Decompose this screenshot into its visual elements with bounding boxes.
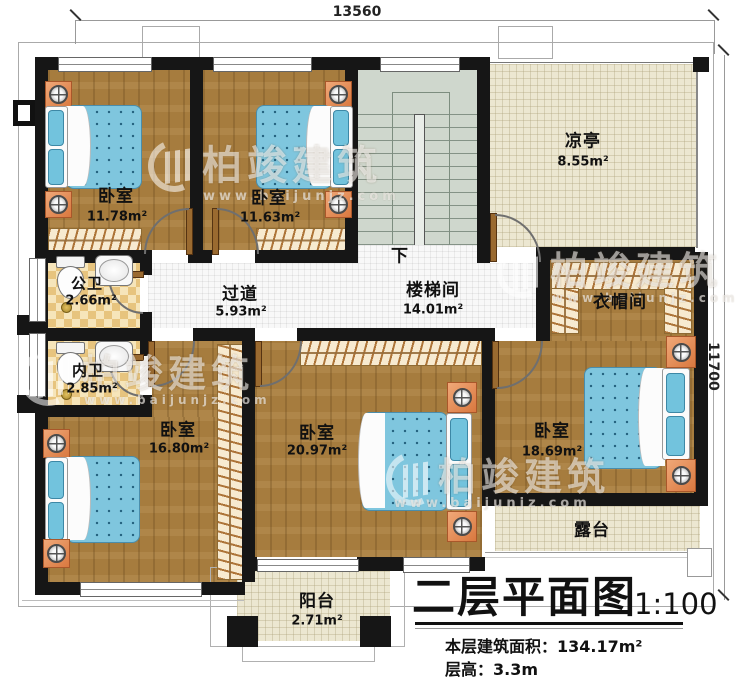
extension-box-right	[498, 26, 553, 59]
nightstand	[45, 81, 72, 108]
lamp-icon	[453, 517, 472, 536]
bed-sheet	[638, 368, 665, 466]
extension-box-left	[142, 26, 200, 59]
nightstand	[45, 191, 72, 218]
label-bedroom2: 卧室	[251, 191, 287, 208]
label-bedroom5-area: 18.69m²	[522, 446, 582, 459]
window-bedroom4	[403, 557, 470, 573]
pavilion-corner-pillar	[693, 57, 709, 72]
nightstand	[447, 382, 477, 413]
watermark-brand: 柏竣建筑	[438, 458, 610, 496]
bed-sheet	[358, 413, 385, 508]
label-hallway: 过道	[222, 287, 258, 304]
floor-area-label: 本层建筑面积：	[445, 637, 557, 656]
label-stairs-down: 下	[391, 249, 409, 266]
terrace-rail-2	[485, 557, 711, 558]
title-underline	[415, 622, 683, 625]
label-bedroom3: 卧室	[160, 423, 196, 440]
watermark-logo-icon	[20, 350, 76, 406]
watermark-brand: 柏竣建筑	[550, 252, 722, 290]
pillow	[48, 149, 64, 185]
dim-line-top	[75, 20, 715, 21]
nightstand	[43, 539, 70, 568]
lamp-icon	[49, 195, 68, 214]
stair-divider	[414, 114, 425, 250]
floor-area-row: 本层建筑面积：134.17m²	[445, 639, 642, 655]
closet-bedroom4	[300, 340, 482, 366]
nightstand	[325, 81, 352, 108]
floor-area-value: 134.17m²	[557, 637, 642, 656]
nightstand	[666, 459, 696, 492]
bed-headboard	[662, 368, 690, 460]
wall	[477, 57, 490, 263]
bed-sheet	[64, 457, 91, 540]
dim-line-right	[724, 55, 725, 600]
label-terrace: 露台	[574, 523, 610, 540]
floor-height-label: 层高：	[445, 660, 493, 679]
watermark-brand: 柏竣建筑	[202, 146, 382, 186]
balcony-sliding-door	[257, 559, 359, 572]
watermark-logo-icon	[497, 248, 547, 298]
window-bedroom1	[58, 57, 152, 72]
pillow	[48, 110, 64, 146]
label-bedroom4-area: 20.97m²	[287, 445, 347, 458]
nightstand	[447, 511, 477, 542]
window-bedroom3	[80, 582, 202, 597]
flue-box	[13, 100, 35, 126]
label-private-bath: 内卫	[72, 364, 104, 379]
pillow	[48, 461, 64, 499]
pavilion-rail-right	[696, 62, 698, 248]
wall	[35, 328, 148, 341]
balcony-pillar-right	[360, 616, 391, 647]
lamp-icon	[672, 466, 691, 485]
label-bedroom5: 卧室	[534, 424, 570, 441]
plan-scale: 1:100	[634, 590, 718, 619]
nightstand	[43, 429, 70, 458]
label-bedroom4: 卧室	[299, 426, 335, 443]
label-bedroom1-area: 11.78m²	[87, 211, 147, 224]
wall	[297, 328, 495, 341]
lamp-icon	[49, 85, 68, 104]
label-bedroom3-area: 16.80m²	[149, 443, 209, 456]
lamp-icon	[47, 544, 66, 563]
dim-ext-top-left	[75, 20, 76, 44]
bed-sheet	[64, 106, 91, 186]
sink-basin	[99, 259, 129, 282]
window-bedroom2	[213, 57, 312, 72]
label-cloakroom: 衣帽间	[593, 295, 647, 312]
window-public-bath	[29, 258, 46, 322]
label-stairwell-area: 14.01m²	[403, 304, 463, 317]
pillow	[666, 416, 685, 456]
label-public-bath-area: 2.66m²	[65, 295, 116, 308]
pillow	[666, 373, 685, 413]
bed-headboard	[45, 106, 68, 188]
lamp-icon	[672, 343, 691, 362]
floor-stair-landing	[358, 245, 477, 265]
floor-hallway	[148, 263, 536, 328]
label-public-bath: 公卫	[71, 277, 103, 292]
balcony-pillar-left	[227, 616, 258, 647]
wall	[468, 557, 485, 571]
title-underline-thin	[415, 628, 683, 629]
label-pavilion: 凉亭	[565, 134, 601, 151]
label-balcony: 阳台	[299, 594, 335, 611]
nightstand	[666, 336, 696, 368]
floor-height-value: 3.3m	[493, 660, 538, 679]
watermark-logo-icon	[148, 140, 200, 192]
dim-ext-top-right	[714, 20, 715, 54]
label-bedroom2-area: 11.63m²	[240, 212, 300, 225]
floor-plan: 13560 11700	[0, 0, 750, 686]
terrace-rail-1	[485, 552, 711, 553]
label-private-bath-area: 2.85m²	[66, 383, 117, 396]
floor-height-row: 层高：3.3m	[445, 662, 538, 678]
balcony-rail-lower	[242, 646, 375, 662]
wall	[357, 557, 403, 571]
label-bedroom1: 卧室	[98, 189, 134, 206]
lamp-icon	[329, 85, 348, 104]
lamp-icon	[453, 388, 472, 407]
baseline-bottom-left	[22, 600, 244, 601]
terrace-corner-post	[687, 548, 712, 577]
dim-width-label: 13560	[322, 4, 392, 20]
label-balcony-area: 2.71m²	[291, 615, 342, 628]
label-hallway-area: 5.93m²	[215, 306, 266, 319]
label-pavilion-area: 8.55m²	[557, 156, 608, 169]
bed-headboard	[45, 457, 68, 543]
label-stairwell: 楼梯间	[406, 283, 460, 300]
pavilion-rail-top	[485, 62, 697, 63]
wall	[255, 250, 358, 263]
pillow	[48, 502, 64, 540]
pillow	[333, 110, 349, 146]
window-stairwell	[380, 57, 460, 72]
watermark-url: www.baijunjz.com	[203, 190, 400, 203]
watermark-url: www.baijunjz.com	[394, 497, 591, 510]
lamp-icon	[47, 434, 66, 453]
plan-title: 二层平面图	[412, 577, 637, 620]
